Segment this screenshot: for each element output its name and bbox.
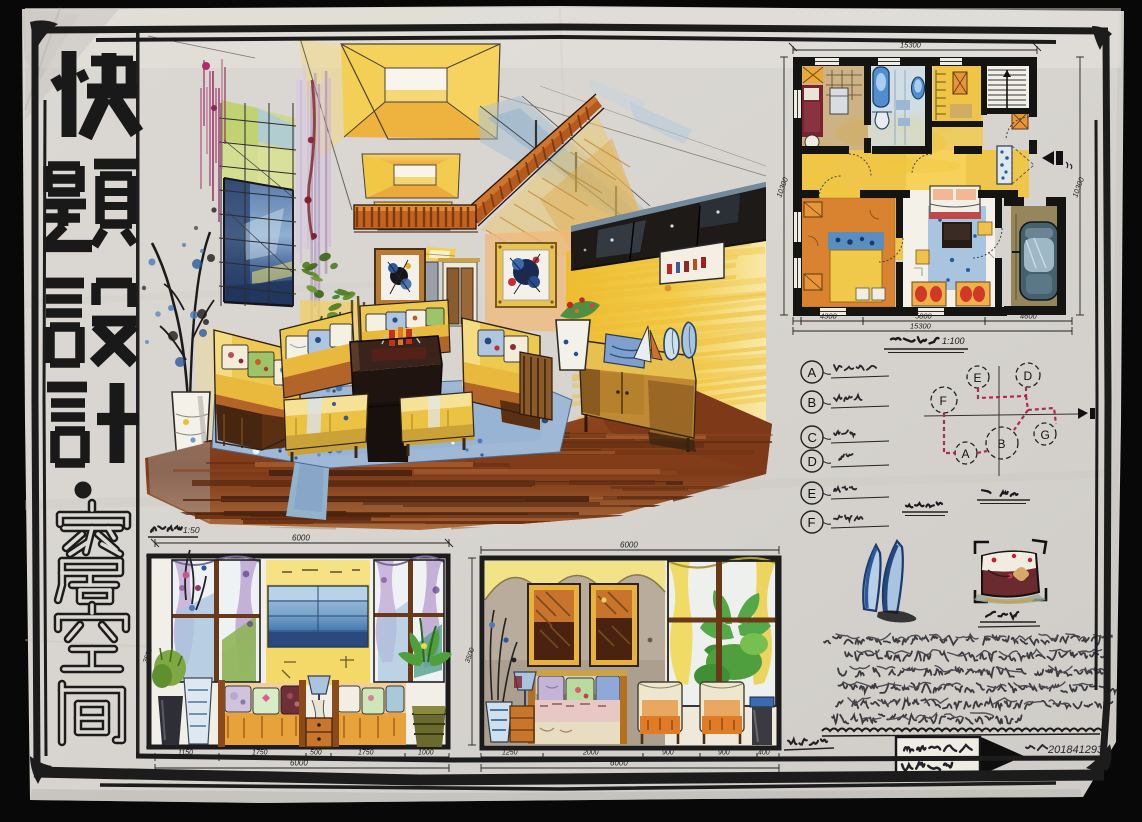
svg-text:D: D <box>1024 369 1033 383</box>
svg-text:900: 900 <box>718 750 730 757</box>
svg-text:F: F <box>940 394 947 408</box>
svg-text:6000: 6000 <box>620 541 638 550</box>
svg-text:E: E <box>808 486 817 501</box>
svg-text:B: B <box>808 395 817 410</box>
svg-text:400: 400 <box>758 750 770 757</box>
svg-text:A: A <box>962 447 970 461</box>
svg-text:B: B <box>998 437 1006 451</box>
svg-text:500: 500 <box>310 750 322 757</box>
svg-text:4600: 4600 <box>1020 312 1038 321</box>
svg-text:C: C <box>808 430 817 445</box>
svg-text:2000: 2000 <box>582 750 599 757</box>
svg-text:1:50: 1:50 <box>183 525 200 535</box>
svg-text:1:100: 1:100 <box>942 336 965 346</box>
svg-text:A: A <box>808 365 817 380</box>
svg-text:D: D <box>808 454 817 469</box>
svg-text:1250: 1250 <box>502 750 518 757</box>
svg-text:6000: 6000 <box>292 534 310 543</box>
svg-text:5800: 5800 <box>915 312 933 321</box>
svg-text:900: 900 <box>662 750 674 757</box>
svg-text:1000: 1000 <box>418 750 434 757</box>
svg-text:E: E <box>974 371 982 385</box>
svg-text:15300: 15300 <box>910 322 932 331</box>
svg-text:4300: 4300 <box>820 312 838 321</box>
svg-text:1750: 1750 <box>358 750 374 757</box>
svg-text:F: F <box>808 515 816 530</box>
svg-text:201841293: 201841293 <box>1047 744 1104 756</box>
svg-text:G: G <box>1041 428 1050 442</box>
